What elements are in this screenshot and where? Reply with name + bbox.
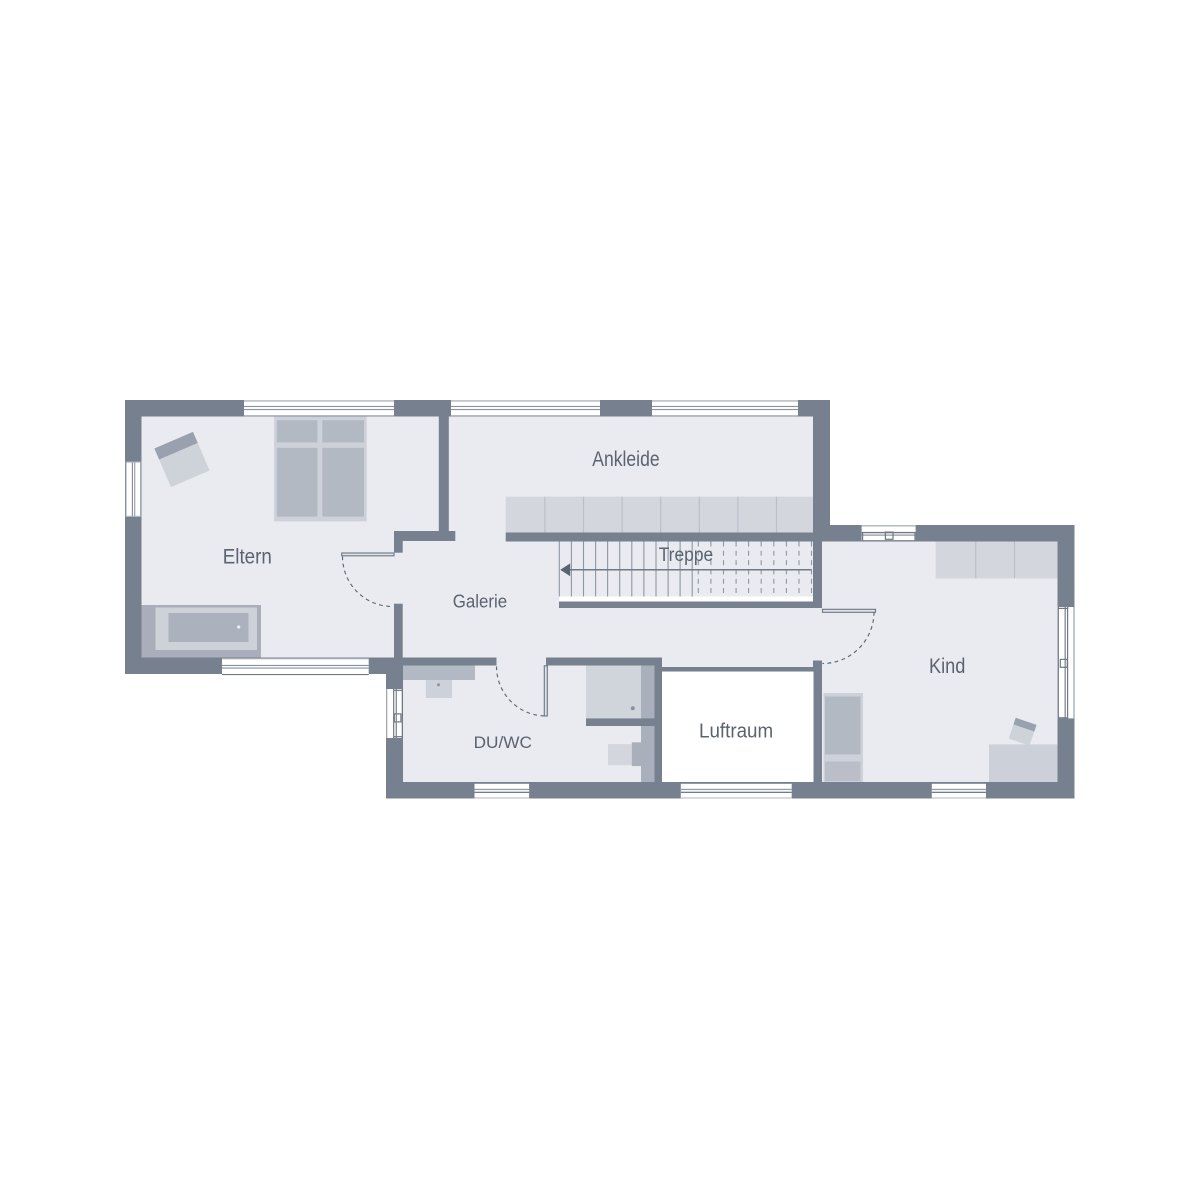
svg-text:Galerie: Galerie <box>453 592 507 612</box>
svg-text:Luftraum: Luftraum <box>699 720 773 743</box>
svg-text:Kind: Kind <box>929 654 965 678</box>
svg-text:Ankleide: Ankleide <box>592 446 659 471</box>
svg-text:DU/WC: DU/WC <box>474 734 532 752</box>
svg-text:Eltern: Eltern <box>223 544 272 569</box>
svg-text:Treppe: Treppe <box>659 545 714 566</box>
